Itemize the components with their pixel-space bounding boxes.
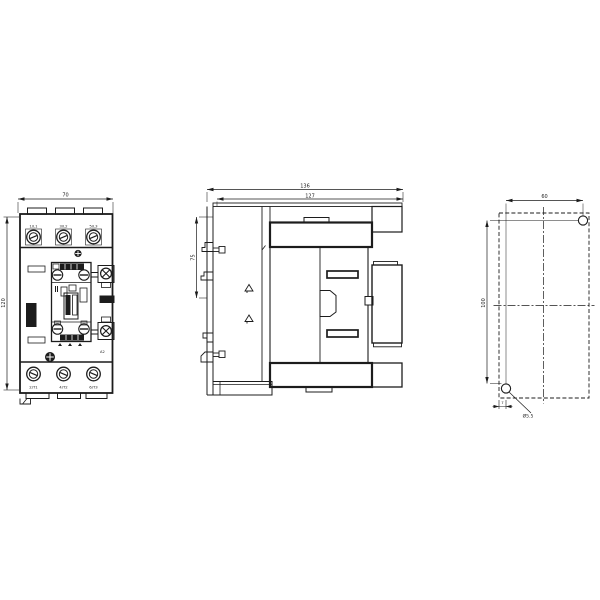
dimension-drawing: 70 120 — [0, 0, 600, 600]
coil-label-a1: A1 — [104, 297, 110, 302]
side-inner-depth-dimension: 127 — [217, 193, 403, 206]
hole-spacing-width-label: 60 — [541, 194, 547, 200]
hole-diameter-callout: Ø5.5 — [509, 392, 533, 420]
latch-marks — [245, 285, 253, 324]
hole-spacing-width-dimension: 60 — [506, 194, 583, 384]
front-fixing-screw — [45, 352, 55, 362]
hole-offset-dimension: 7 — [493, 400, 513, 409]
side-view: 136 127 75 — [191, 184, 404, 396]
side-profile — [201, 203, 402, 395]
mounting-hole-bottom-left — [501, 384, 510, 393]
hole-diameter-label: Ø5.5 — [523, 413, 534, 420]
hole-offset-label: 7 — [501, 400, 504, 405]
terminal-label-6T3: 6/T3 — [89, 385, 98, 390]
mounting-hole-top-right — [578, 216, 587, 225]
side-overall-depth-label: 136 — [300, 184, 310, 190]
terminal-label-3L2: 3/L2 — [59, 224, 68, 229]
hole-spacing-height-dimension: 100 — [481, 221, 579, 384]
front-view: 70 120 — [1, 193, 115, 405]
terminal-label-5L3: 5/L3 — [89, 224, 98, 229]
drilling-plan-view: 60 100 7 Ø5.5 — [481, 194, 595, 420]
terminal-label-1L1: 1/L1 — [29, 224, 38, 229]
front-width-label: 70 — [62, 193, 68, 199]
coil-label-a2: A2 — [100, 350, 105, 354]
terminal-label-4T2: 4/T2 — [59, 385, 68, 390]
front-width-dimension: 70 — [18, 193, 113, 214]
hole-spacing-height-label: 100 — [481, 298, 487, 308]
terminal-label-2T1: 2/T1 — [29, 385, 38, 390]
front-height-dimension: 120 — [1, 217, 19, 390]
front-height-label: 120 — [1, 298, 7, 308]
side-height-dimension: 75 — [191, 217, 214, 298]
side-inner-depth-label: 127 — [305, 193, 315, 199]
dimension-drawing-page: 70 120 — [0, 0, 600, 600]
side-height-label: 75 — [191, 254, 197, 260]
front-indicator-screw — [74, 250, 81, 257]
